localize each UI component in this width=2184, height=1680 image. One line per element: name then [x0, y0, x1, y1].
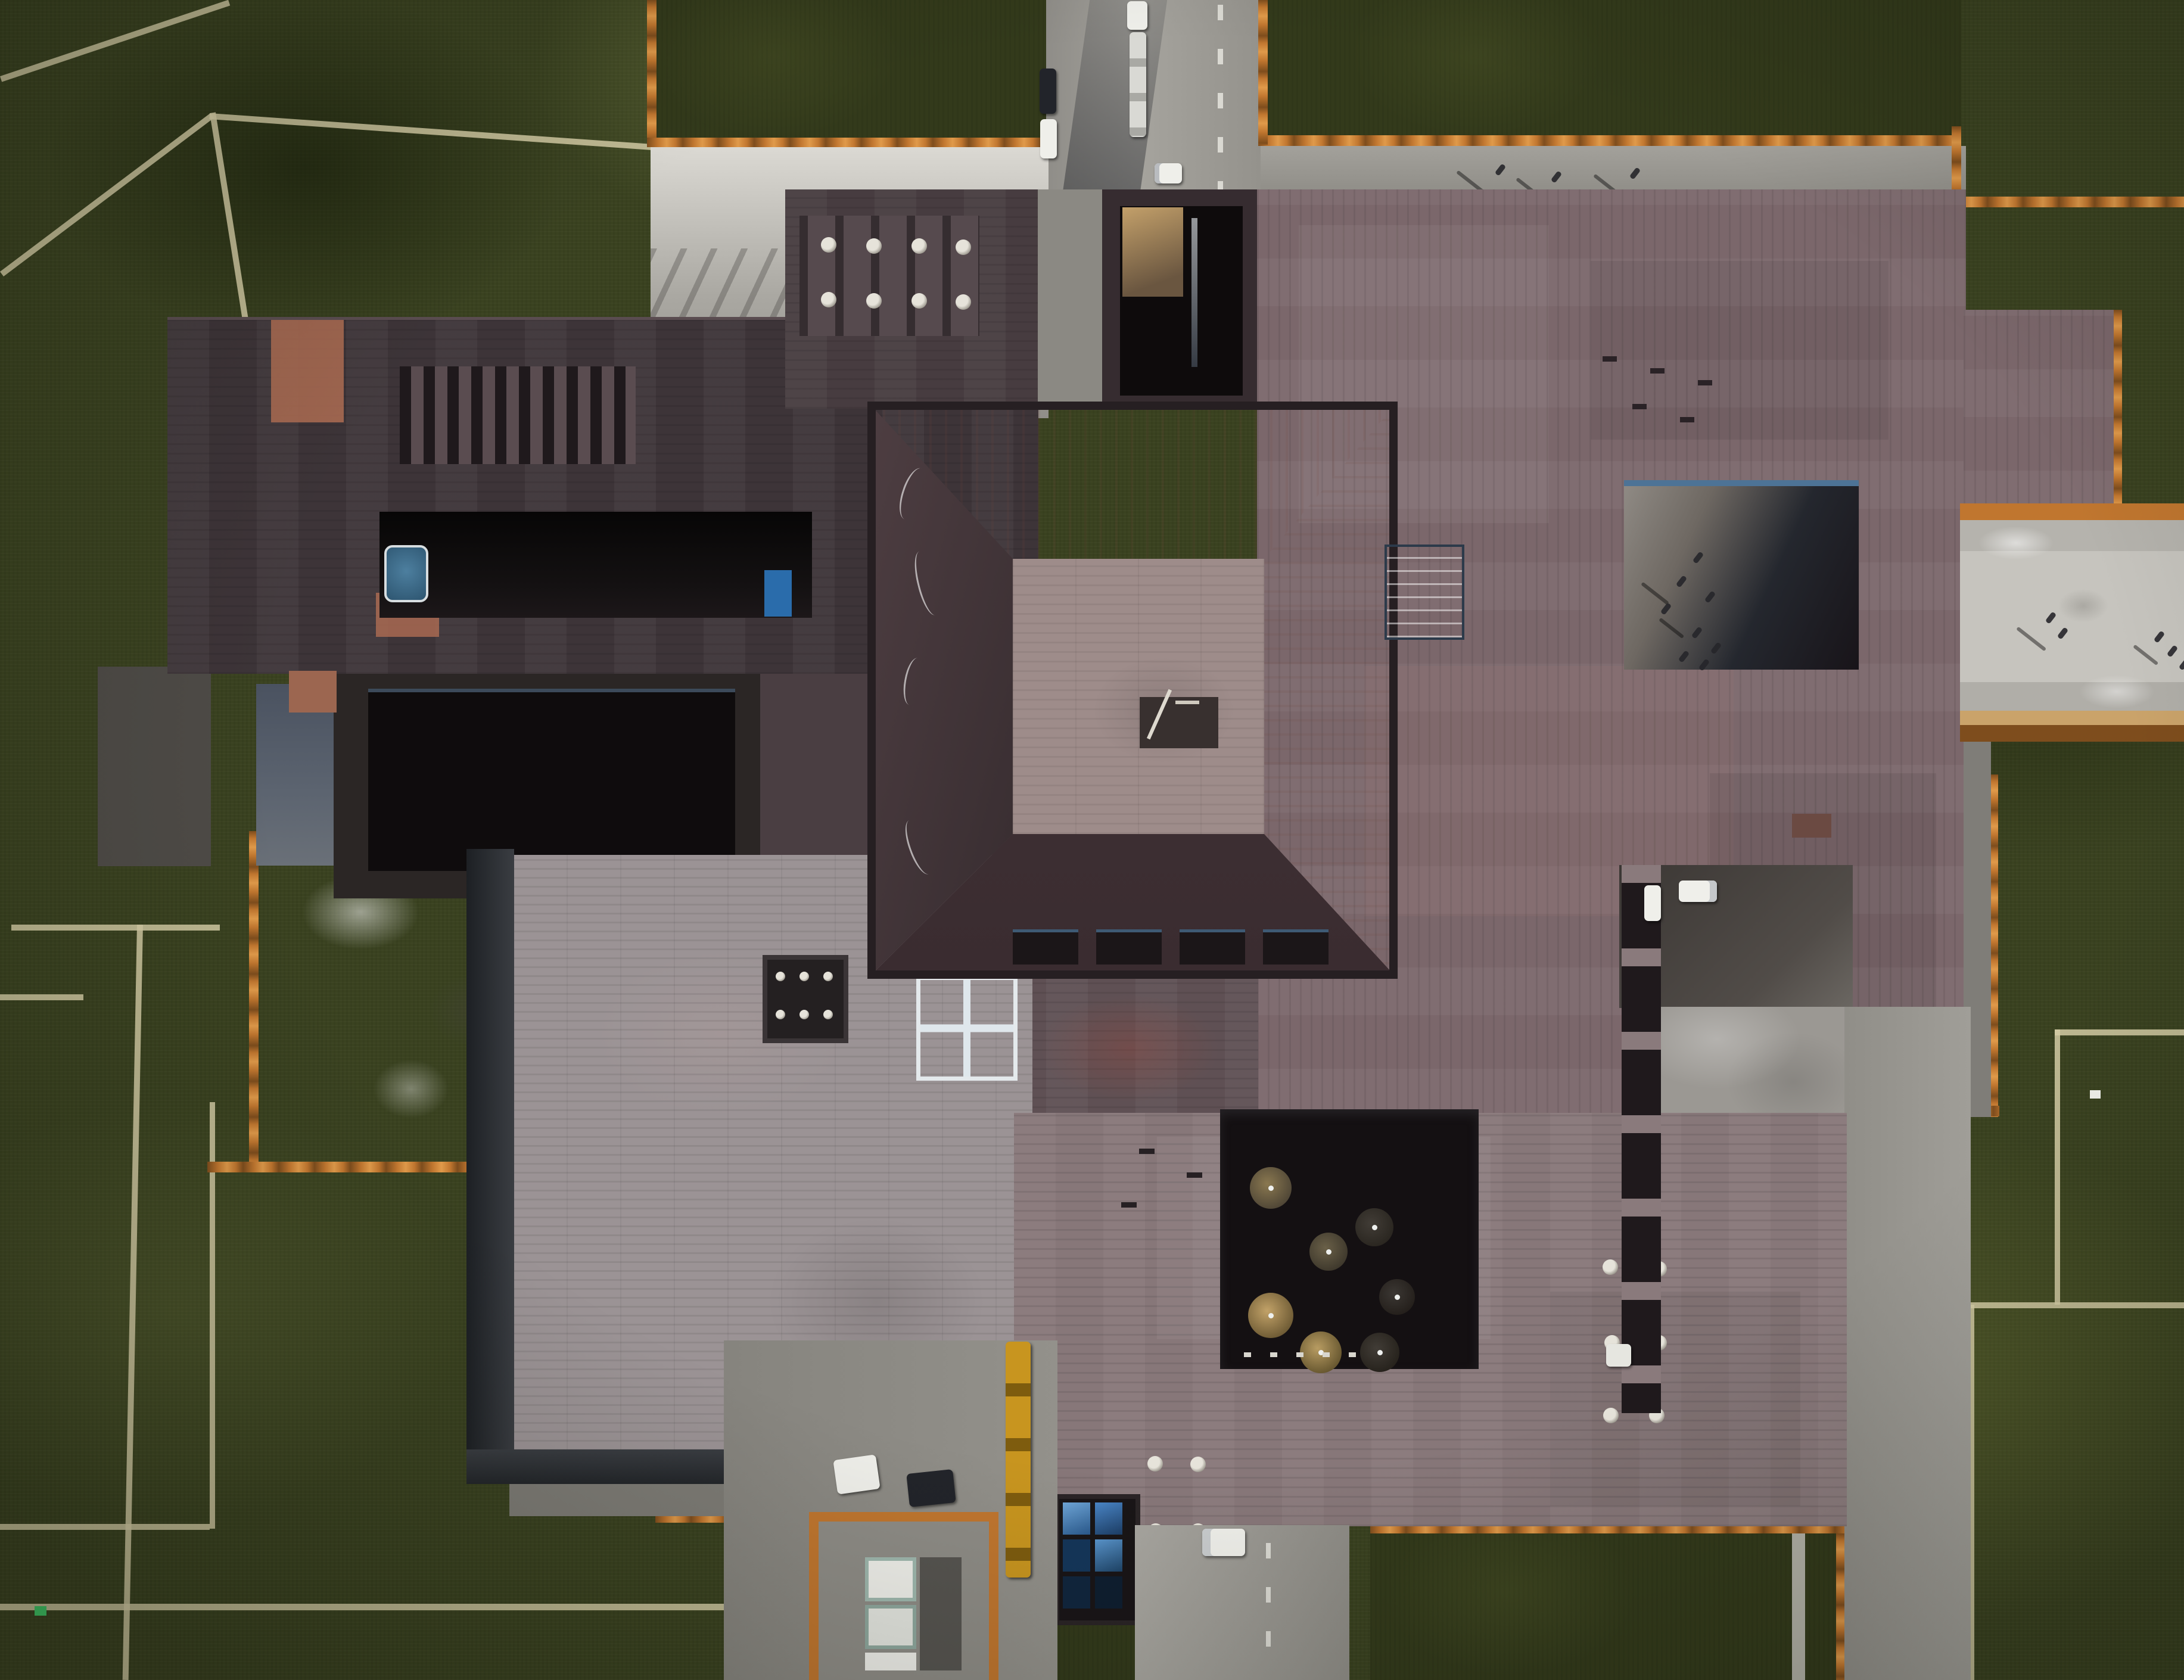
pedestrian — [1551, 170, 1562, 183]
lightwell-block — [1102, 189, 1261, 409]
roof-dark-margin — [466, 849, 514, 1452]
grass-line — [1968, 1302, 2184, 1308]
vent-circle — [1603, 1259, 1618, 1275]
skylight-grid — [1054, 1494, 1140, 1625]
skylight-dot — [823, 1010, 833, 1019]
skylight-pane-blue — [1095, 1539, 1122, 1572]
courtyard-tree — [1355, 1208, 1393, 1246]
skylight-dot — [799, 1010, 809, 1019]
lawn-plot-north-right — [1268, 0, 1961, 135]
north-road — [1046, 0, 1261, 207]
west-shadow-path — [98, 667, 211, 866]
hvac-shadow — [920, 1557, 962, 1670]
courtyard-tables — [1244, 1352, 1375, 1357]
brown-accent-patch — [1792, 814, 1831, 838]
lightwell-glint — [1191, 218, 1197, 367]
pedestrian — [1704, 590, 1716, 603]
white-car — [1606, 1344, 1631, 1367]
west-courtyard-pool — [368, 689, 735, 871]
skylight-pane-dark — [1095, 1576, 1122, 1609]
hvac-unit — [865, 1653, 916, 1670]
skylight-dot — [799, 972, 809, 981]
skylight-pane-blue — [1063, 1502, 1090, 1535]
grass-line — [0, 0, 230, 82]
roof-vent-mark — [1632, 404, 1647, 409]
green-sign — [35, 1606, 46, 1616]
vent-circle — [1603, 1408, 1619, 1423]
pedestrian — [1660, 602, 1672, 615]
skylight-pane-dark — [1063, 1539, 1090, 1572]
vent-circle — [911, 293, 927, 309]
grass-line — [11, 925, 220, 931]
hvac-enclosure — [809, 1512, 998, 1680]
white-car — [1155, 163, 1182, 183]
grass-line — [0, 113, 214, 276]
walkway-strip — [1038, 189, 1102, 409]
roof-vent-mark — [1603, 356, 1617, 362]
grass-line — [2055, 1029, 2184, 1035]
skylight-dot — [776, 1010, 785, 1019]
east-road-strip — [1844, 1007, 1971, 1680]
slot-windows — [400, 366, 636, 464]
hvac-unit — [865, 1605, 916, 1649]
person-shadow — [1659, 618, 1684, 639]
road-centerline — [1266, 1543, 1271, 1674]
grass-line — [0, 1604, 770, 1610]
central-pavilion-roof — [867, 402, 1398, 979]
roof-vent-mark — [1121, 1202, 1137, 1208]
roof-vent-mark — [1650, 368, 1665, 374]
orange-curb — [647, 0, 657, 147]
vent-circle — [956, 239, 971, 255]
pedestrian — [1676, 575, 1687, 587]
grass-line — [0, 994, 83, 1000]
blue-door — [764, 570, 792, 617]
roof-vent-mark — [1139, 1149, 1155, 1154]
orange-curb — [1258, 135, 1961, 146]
vent-circle — [1190, 1457, 1206, 1472]
lawn-plot-north-left — [657, 0, 1046, 138]
vent-circle — [821, 237, 836, 253]
vent-panel — [799, 216, 979, 336]
skylight-pane-blue — [1095, 1502, 1122, 1535]
pedestrian — [1678, 650, 1690, 662]
truck-cab — [1127, 1, 1147, 30]
grass-line — [2055, 1029, 2060, 1305]
lightwell — [1120, 206, 1243, 396]
hvac-unit — [865, 1557, 916, 1601]
orange-curb — [1952, 197, 2184, 207]
walkway-mottle — [1960, 520, 2184, 711]
white-car — [1679, 881, 1717, 902]
vent-circle — [866, 293, 882, 309]
road-centerline — [1218, 5, 1223, 203]
vent-circle — [1147, 1456, 1163, 1471]
sunken-tree-courtyard — [1220, 1109, 1479, 1369]
pedestrian — [1710, 642, 1722, 654]
skylight-box-dark — [763, 955, 848, 1043]
grass-line — [123, 925, 143, 1680]
vent-circle — [866, 238, 882, 254]
courtyard-tree — [1250, 1167, 1292, 1209]
east-roof-arm — [1964, 310, 2114, 518]
roof-patch — [1550, 1292, 1800, 1506]
dark-car — [906, 1469, 956, 1507]
aerial-photo-canvas — [0, 0, 2184, 1680]
orange-curb — [647, 138, 1050, 147]
courtyard-tree — [1309, 1233, 1348, 1271]
pedestrian — [1698, 658, 1710, 671]
pedestrian — [1691, 626, 1703, 639]
white-sign — [2090, 1090, 2101, 1099]
entrance-recess — [379, 512, 812, 618]
lightwell-sunlit-wall — [1122, 207, 1183, 297]
dark-car — [1040, 69, 1056, 114]
east-plaza — [1660, 1007, 1850, 1114]
yellow-truck — [1006, 1342, 1031, 1578]
vent-circle — [911, 238, 927, 254]
north-block-roof — [785, 189, 1047, 409]
skylight-blue-east — [1387, 547, 1462, 637]
grass-line — [0, 1524, 210, 1530]
blue-glass-canopy — [384, 545, 428, 602]
vent-circle — [821, 292, 836, 307]
pavilion-frame — [867, 402, 1398, 979]
red-stain — [1022, 989, 1237, 1108]
white-van — [1202, 1529, 1245, 1556]
lawn-plot-south-road-right — [1370, 1533, 1836, 1680]
terracotta-patch — [271, 320, 344, 422]
vent-circle — [956, 294, 971, 310]
east-walkway — [1960, 503, 2184, 742]
terracotta-ledge — [289, 671, 337, 713]
pedestrian — [1629, 167, 1641, 179]
courtyard-tree — [1248, 1293, 1293, 1338]
skylight-dot — [776, 972, 785, 981]
skylight-dot — [823, 972, 833, 981]
courtyard-tree — [1379, 1279, 1415, 1315]
white-car — [1644, 885, 1661, 921]
truck-trailer — [1130, 32, 1146, 137]
white-car — [1040, 119, 1057, 158]
skylight-blue-west — [916, 976, 1018, 1081]
roof-vent-mark — [1698, 380, 1712, 385]
roof-patch — [1591, 261, 1889, 440]
orange-curb — [249, 831, 259, 1172]
white-car — [833, 1454, 880, 1494]
east-lightwell-courtyard — [1624, 480, 1859, 670]
roof-vent-mark — [1187, 1172, 1202, 1178]
road-shadow — [1062, 0, 1167, 197]
person-shadow — [1641, 582, 1669, 605]
south-roof — [1014, 1113, 1847, 1526]
orange-curb — [1258, 0, 1268, 145]
slot-window-column — [1622, 865, 1661, 1413]
roof-vent-mark — [1680, 417, 1694, 422]
skylight-pane-dark — [1063, 1576, 1090, 1609]
pedestrian — [1495, 163, 1506, 176]
pedestrian — [1693, 551, 1704, 564]
